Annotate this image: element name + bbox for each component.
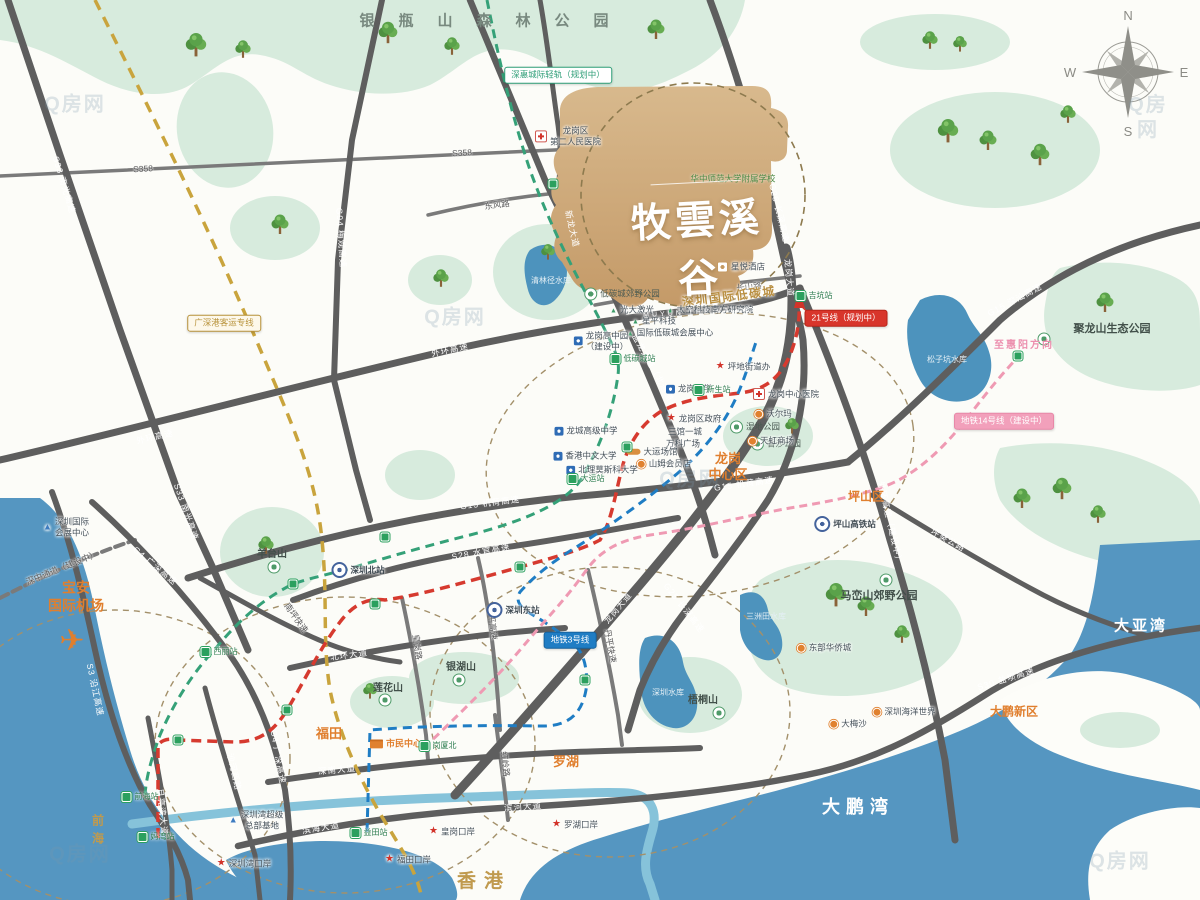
- dot-line-icon: [623, 443, 632, 452]
- dot-line-icon: [174, 736, 183, 745]
- badge-line14-text: 地铁14号线（建设中）: [961, 416, 1047, 427]
- station-dayun-text: 大运站: [581, 474, 605, 484]
- reservoir-songzikeng: 松子坑水库: [927, 355, 967, 365]
- road-danping: 丹平快速: [602, 628, 618, 663]
- dot-orange-icon: [872, 708, 881, 717]
- reservoir-shenzhen-text: 深圳水库: [652, 688, 684, 698]
- bay-dapeng-text: 大鹏湾: [822, 796, 894, 819]
- badge-line14: 地铁14号线（建设中）: [954, 413, 1054, 430]
- mt-yangtai-text: 羊台山: [257, 549, 287, 562]
- label-layer: 银瓶山森林公园宝安 国际机场✈福田罗湖龙岗 中心区坪山区大鹏新区市民中心深圳国际…: [0, 0, 1200, 900]
- road-shennan: 深南大道: [318, 763, 357, 777]
- sta-green-icon: [796, 291, 806, 301]
- dot-line-icon: [381, 533, 390, 542]
- port-shenzhenwan-text: 深圳湾口岸: [229, 859, 272, 870]
- line-station-dot: [371, 600, 380, 609]
- road-s3: S3 沿江高速: [84, 663, 106, 718]
- bay-daya-text: 大亚湾: [1114, 618, 1168, 637]
- road-g4-2: G4 广深高速: [268, 729, 288, 785]
- mt-wutong-icon: [713, 707, 726, 720]
- mt-wutong-text: 梧桐山: [688, 695, 718, 708]
- park-icon: [713, 707, 726, 720]
- road-g94: G94 梅观高速: [334, 207, 349, 268]
- station-gangxiabei: 岗厦北: [420, 741, 457, 751]
- reservoir-sanzhoutian: 三洲田水库: [746, 612, 786, 622]
- badge-line3-text: 地铁3号线: [551, 635, 590, 646]
- hospital-lg-center: 龙岗中心医院: [753, 388, 819, 400]
- road-dongfeng-text: 东风路: [484, 198, 511, 212]
- line-station-dot: [623, 443, 632, 452]
- dot-orange-icon: [829, 720, 838, 729]
- road-g25-2-text: G25 长深高速: [661, 581, 707, 635]
- road-binhe: 滨河大道: [504, 800, 543, 813]
- poi-dameisha-text: 大梅沙: [841, 719, 867, 730]
- road-g15-jihe: G15 机荷高速: [459, 494, 520, 512]
- school-longcheng-text: 龙城高级中学: [566, 426, 617, 437]
- star-red-icon: [552, 820, 561, 830]
- port-futian: 福田口岸: [385, 855, 431, 866]
- park-wetland: 湿地公园: [730, 421, 780, 434]
- port-huanggang-text: 皇岗口岸: [441, 827, 475, 838]
- road-s30: S30 盐坝高速: [976, 665, 1036, 693]
- dot-orange-icon: [754, 410, 763, 419]
- qianhai-text: 前海: [90, 814, 105, 850]
- bay-daya: 大亚湾: [1114, 618, 1168, 637]
- mt-yinhu-text: 银湖山: [446, 662, 476, 675]
- port-futian-text: 福田口岸: [397, 855, 431, 866]
- reservoir-sanzhoutian-text: 三洲田水库: [746, 612, 786, 622]
- road-shahexi: 沙河西路: [225, 752, 244, 791]
- mt-yinhu: 银湖山: [446, 662, 476, 675]
- district-pingshan-text: 坪山区: [848, 490, 884, 505]
- poi-gaozhongyuan-text: 龙岗高中园 （建设中）: [586, 330, 629, 351]
- road-s33-text: S33 南光高速: [50, 155, 78, 215]
- hospital-lg-center-text: 龙岗中心医院: [768, 389, 819, 400]
- road-xinlong-text: 新龙大道: [563, 209, 582, 248]
- school-icon: [574, 337, 583, 346]
- watermark-text: Q房网: [424, 306, 486, 331]
- reservoir-shenzhen: 深圳水库: [652, 688, 684, 698]
- watermark: Q房网: [1122, 93, 1174, 143]
- school-icon: [554, 427, 563, 436]
- poi-lg-gov: 龙岗区政府: [667, 414, 721, 425]
- line-station-dot: [549, 180, 558, 189]
- oct-east: 东部华侨城: [797, 643, 852, 654]
- cross-icon: [753, 388, 765, 400]
- district-dapeng: 大鹏新区: [990, 705, 1038, 720]
- poi-bay-hq-text: 深圳湾超级 总部基地: [241, 809, 284, 830]
- badge-shenhui-rail: 深惠城际轻轨（规划中）: [504, 67, 612, 84]
- road-nanping: 南坪快速: [282, 601, 310, 635]
- road-pingkui: 坪葵公路: [929, 526, 967, 554]
- road-g94-text: G94 梅观高速: [334, 207, 349, 268]
- hongkong: 香港: [457, 870, 511, 894]
- sta-green-icon: [611, 354, 621, 364]
- poi-dameisha: 大梅沙: [829, 719, 867, 730]
- road-shennan-text: 深南大道: [318, 763, 357, 777]
- watermark: Q房网: [1089, 850, 1151, 875]
- sta-green-icon: [568, 474, 578, 484]
- station-xinsheng: 新生站: [694, 385, 731, 395]
- dot-line-icon: [581, 676, 590, 685]
- badge-line21-text: 21号线（规划中）: [812, 313, 881, 324]
- road-s358: S358: [133, 163, 153, 175]
- poi-sanguan: 三馆一城: [668, 427, 702, 438]
- district-luohu-text: 罗湖: [553, 754, 579, 770]
- project-logo: 牧雲溪谷 MUYUN THE VALLEY: [613, 178, 785, 320]
- line-station-dot: [174, 736, 183, 745]
- civic-icon: [370, 740, 383, 749]
- road-s28: S28 水官高速: [451, 542, 511, 563]
- port-huanggang: 皇岗口岸: [429, 827, 475, 838]
- poi-bay-hq: 深圳湾超级 总部基地: [229, 809, 283, 830]
- tri-blue-icon: [229, 816, 238, 825]
- dot-orange-icon: [748, 437, 757, 446]
- park-maluanshan-text: 马峦山郊野公园: [841, 590, 918, 604]
- sta-green-icon: [420, 741, 430, 751]
- district-pingshan: 坪山区: [848, 490, 884, 505]
- station-pingshan-hsr-text: 坪山高铁站: [833, 519, 876, 530]
- line-station-dot: [1014, 352, 1023, 361]
- station-ditancheng-text: 低碳城站: [624, 354, 656, 364]
- airport-label: 宝安 国际机场: [48, 580, 104, 615]
- road-huanggang: 皇岗路: [410, 634, 424, 661]
- line-station-dot: [516, 563, 525, 572]
- line-station-dot: [289, 580, 298, 589]
- station-pingshan-hsr: 坪山高铁站: [814, 516, 876, 532]
- road-outer-ring-2-text: 外环高速: [430, 341, 469, 359]
- road-outer-ring-2: 外环高速: [430, 341, 469, 359]
- airport-label-text: 宝安 国际机场: [48, 580, 104, 615]
- district-luohu: 罗湖: [553, 754, 579, 770]
- dot-line-icon: [371, 600, 380, 609]
- station-ditancheng: 低碳城站: [611, 354, 656, 364]
- badge-gsg-rail-text: 广深港客运专线: [194, 318, 254, 329]
- road-g25-2: G25 长深高速: [661, 581, 707, 635]
- civic-center: 市民中心: [370, 738, 422, 749]
- road-g4-2-text: G4 广深高速: [268, 729, 288, 785]
- school-cuhk-text: 香港中文大学: [565, 451, 616, 462]
- star-red-icon: [429, 827, 438, 837]
- road-s28-text: S28 水官高速: [451, 542, 511, 563]
- poi-pingdi-office-text: 坪地街道办: [728, 362, 771, 373]
- badge-shenhui-rail-text: 深惠城际轻轨（规划中）: [511, 70, 605, 81]
- road-s33-2-text: S33 南光高速: [171, 482, 200, 542]
- poi-sea-world: 深圳海洋世界: [872, 707, 935, 718]
- reservoir-qinglinjing-text: 清林径水库: [531, 276, 571, 286]
- road-g4-text: G4 广深高速: [131, 544, 180, 587]
- dot-orange-icon: [797, 644, 806, 653]
- road-beihuan: 北环大道: [329, 647, 368, 662]
- station-xili-text: 西丽站: [214, 647, 238, 657]
- park-julongshan-text: 聚龙山生态公园: [1074, 323, 1151, 337]
- district-longgang-center: 龙岗 中心区: [708, 451, 747, 484]
- poi-dayun-stadium: 大运场馆: [626, 447, 677, 458]
- port-shenzhenwan: 深圳湾口岸: [217, 859, 271, 870]
- bay-dapeng: 大鹏湾: [822, 796, 894, 819]
- mt-lianhua-icon: [379, 694, 392, 707]
- station-yitian: 益田站: [351, 828, 388, 838]
- road-binhe-text: 滨河大道: [504, 800, 543, 813]
- school-icon: [666, 385, 675, 394]
- road-g4: G4 广深高速: [131, 544, 180, 587]
- poi-expo-center: 深圳国际 会展中心: [43, 516, 89, 537]
- district-futian-text: 福田: [316, 726, 342, 742]
- star-red-icon: [667, 414, 676, 424]
- station-dayun: 大运站: [568, 474, 605, 484]
- station-xili: 西丽站: [201, 647, 238, 657]
- line-station-dot: [381, 533, 390, 542]
- district-futian: 福田: [316, 726, 342, 742]
- hospital-no2: 龙岗区 第二人民医院: [535, 125, 601, 146]
- dot-line-icon: [1014, 352, 1023, 361]
- road-pingkui-text: 坪葵公路: [929, 526, 967, 554]
- station-qianhai: 前海站: [122, 792, 159, 802]
- park-icon: [268, 561, 281, 574]
- watermark-text: Q房网: [44, 93, 106, 118]
- school-icon: [553, 452, 562, 461]
- station-mawan: 妈湾站: [138, 832, 175, 842]
- road-binhai-text: 滨海大道: [301, 820, 340, 836]
- road-g15-shenshan: G15 深汕高速: [986, 281, 1044, 319]
- road-s358-2: S358: [452, 147, 472, 159]
- park-maluanshan: 马峦山郊野公园: [841, 590, 918, 604]
- road-hongling: 红岭路: [498, 751, 511, 777]
- badge-gsg-rail: 广深港客运专线: [187, 315, 261, 332]
- hongkong-text: 香港: [457, 870, 511, 894]
- station-mawan-text: 妈湾站: [151, 832, 175, 842]
- station-qianhai-text: 前海站: [135, 792, 159, 802]
- school-cuhk: 香港中文大学: [553, 451, 616, 462]
- sta-green-icon: [138, 832, 148, 842]
- civic-center-text: 市民中心: [386, 738, 422, 749]
- dot-line-icon: [283, 706, 292, 715]
- poi-rainbow: 天虹商场: [748, 436, 794, 447]
- road-yanlong: 盐龙大道（北通道）: [630, 332, 681, 412]
- park-icon: [584, 288, 597, 301]
- poi-expo-center-text: 深圳国际 会展中心: [55, 516, 89, 537]
- road-longgang-ave-2-text: 龙岗大道: [602, 590, 635, 626]
- road-s33-2: S33 南光高速: [171, 482, 200, 542]
- to-huiyang-text: 至惠阳方向: [994, 340, 1054, 353]
- dot-line-icon: [516, 563, 525, 572]
- rail-icon: [814, 516, 830, 532]
- road-longgang-ave-text: 龙岗大道: [782, 259, 796, 298]
- station-sz-east: 深圳东站: [486, 602, 539, 618]
- to-huiyang: 至惠阳方向: [994, 340, 1054, 353]
- mt-yangtai-icon: [268, 561, 281, 574]
- road-danping-text: 丹平快速: [602, 628, 618, 663]
- hospital-no2-text: 龙岗区 第二人民医院: [550, 125, 601, 146]
- poi-pingdi-office: 坪地街道办: [716, 362, 770, 373]
- poi-lcc-expo: 国际低碳城会展中心: [627, 328, 713, 339]
- poi-rainbow-text: 天虹商场: [760, 436, 794, 447]
- poi-walmart-text: 沃尔玛: [766, 409, 792, 420]
- park-icon: [453, 674, 466, 687]
- road-shahexi-text: 沙河西路: [225, 752, 244, 791]
- line-station-dot: [581, 676, 590, 685]
- star-red-icon: [716, 362, 725, 372]
- star-red-icon: [217, 859, 226, 869]
- road-xinlong: 新龙大道: [563, 209, 582, 248]
- district-dapeng-text: 大鹏新区: [990, 705, 1038, 720]
- port-luohu-text: 罗湖口岸: [564, 820, 598, 831]
- watermark: Q房网: [424, 306, 486, 331]
- road-s358-2-text: S358: [452, 147, 472, 159]
- road-nanping-text: 南坪快速: [282, 601, 310, 635]
- road-longgang-ave: 龙岗大道: [782, 259, 796, 298]
- mt-yinhu-icon: [453, 674, 466, 687]
- poi-sea-world-text: 深圳海洋世界: [884, 707, 935, 718]
- sta-green-icon: [694, 385, 704, 395]
- dot-line-icon: [549, 180, 558, 189]
- road-s358-text: S358: [133, 163, 153, 175]
- map: N E S W 牧雲溪谷 MUYUN THE VALLEY 银瓶山森林公园宝安 …: [0, 0, 1200, 900]
- road-yanlong-text: 盐龙大道（北通道）: [630, 332, 681, 412]
- road-outer-ring: 外环高速: [135, 428, 174, 447]
- star-red-icon: [385, 855, 394, 865]
- park-julongshan: 聚龙山生态公园: [1074, 323, 1151, 337]
- cross-icon: [535, 130, 547, 142]
- poi-dayun-stadium-text: 大运场馆: [643, 447, 677, 458]
- road-huanggang-text: 皇岗路: [410, 634, 424, 661]
- qianhai: 前海: [90, 814, 105, 850]
- park-maluanshan-icon: [880, 574, 893, 587]
- mt-wutong: 梧桐山: [688, 695, 718, 708]
- school-longcheng: 龙城高级中学: [554, 426, 617, 437]
- line-station-dot: [283, 706, 292, 715]
- poi-walmart: 沃尔玛: [754, 409, 792, 420]
- road-beihuan-text: 北环大道: [329, 647, 368, 662]
- park-icon: [880, 574, 893, 587]
- station-sz-north-text: 深圳北站: [350, 565, 384, 576]
- poi-lg-gov-text: 龙岗区政府: [679, 414, 722, 425]
- mt-yangtai: 羊台山: [257, 549, 287, 562]
- road-g15-jihe-text: G15 机荷高速: [459, 494, 520, 512]
- station-sz-north: 深圳北站: [331, 562, 384, 578]
- project-name: 牧雲溪谷: [613, 184, 784, 308]
- road-hongling-text: 红岭路: [498, 751, 511, 777]
- oct-east-text: 东部华侨城: [809, 643, 852, 654]
- road-s3-text: S3 沿江高速: [84, 663, 106, 718]
- port-luohu: 罗湖口岸: [552, 820, 598, 831]
- sta-green-icon: [201, 647, 211, 657]
- poi-lcc-expo-text: 国际低碳城会展中心: [637, 328, 714, 339]
- forest-park-title: 银瓶山森林公园: [359, 13, 632, 32]
- watermark-text: Q房网: [1089, 850, 1151, 875]
- dot-line-icon: [289, 580, 298, 589]
- reservoir-songzikeng-text: 松子坑水库: [927, 355, 967, 365]
- road-s30-text: S30 盐坝高速: [976, 665, 1036, 693]
- station-jikeng: 吉坑站: [796, 291, 833, 301]
- park-wetland-text: 湿地公园: [746, 422, 780, 433]
- forest-park-title-text: 银瓶山森林公园: [359, 13, 632, 32]
- poi-sams-text: 山姆会员店: [649, 459, 692, 470]
- airplane-icon-text: ✈: [59, 622, 84, 660]
- poi-sams: 山姆会员店: [637, 459, 692, 470]
- road-s33: S33 南光高速: [50, 155, 78, 215]
- road-dongfeng: 东风路: [484, 198, 511, 212]
- badge-line3: 地铁3号线: [544, 632, 597, 649]
- station-yitian-text: 益田站: [364, 828, 388, 838]
- road-longgang-ave-2: 龙岗大道: [602, 590, 635, 626]
- station-gangxiabei-text: 岗厦北: [433, 741, 457, 751]
- park-icon: [730, 421, 743, 434]
- station-jikeng-text: 吉坑站: [809, 291, 833, 301]
- sta-green-icon: [122, 792, 132, 802]
- airplane-icon: ✈: [59, 622, 84, 660]
- poi-gaozhongyuan: 龙岗高中园 （建设中）: [574, 330, 629, 351]
- watermark-text: Q房网: [1122, 93, 1174, 143]
- district-longgang-center-text: 龙岗 中心区: [708, 451, 747, 484]
- park-icon: [379, 694, 392, 707]
- road-outer-ring-text: 外环高速: [135, 428, 174, 447]
- station-xinsheng-text: 新生站: [707, 385, 731, 395]
- road-binhai: 滨海大道: [301, 820, 340, 836]
- road-g15-shenshan-text: G15 深汕高速: [986, 281, 1044, 319]
- tri-blue-icon: [43, 523, 52, 532]
- tri-green-icon: [610, 306, 617, 315]
- watermark: Q房网: [44, 93, 106, 118]
- badge-line21: 21号线（规划中）: [805, 310, 888, 327]
- rail-icon: [331, 562, 347, 578]
- poi-sanguan-text: 三馆一城: [668, 427, 702, 438]
- reservoir-qinglinjing: 清林径水库: [531, 276, 571, 286]
- station-sz-east-text: 深圳东站: [505, 605, 539, 616]
- sta-green-icon: [351, 828, 361, 838]
- rail-icon: [486, 602, 502, 618]
